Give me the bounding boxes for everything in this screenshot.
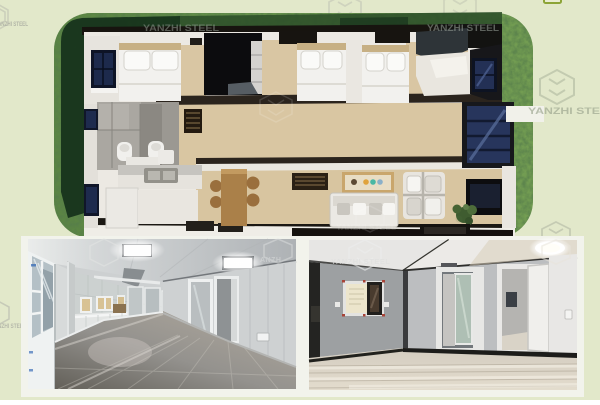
svg-text:ANZHI STEEL: ANZHI STEEL <box>0 21 28 28</box>
svg-text:YANZHI STEEL: YANZHI STEEL <box>336 223 396 232</box>
svg-text:ANZH: ANZH <box>260 257 281 264</box>
svg-text:YANZHI STEEL: YANZHI STEEL <box>143 23 219 34</box>
svg-text:YANZHI STEEL: YANZHI STEEL <box>427 23 499 34</box>
svg-text:YANZHI STE: YANZHI STE <box>528 106 600 117</box>
svg-text:YANZHI STEEL: YANZHI STEEL <box>331 257 390 266</box>
